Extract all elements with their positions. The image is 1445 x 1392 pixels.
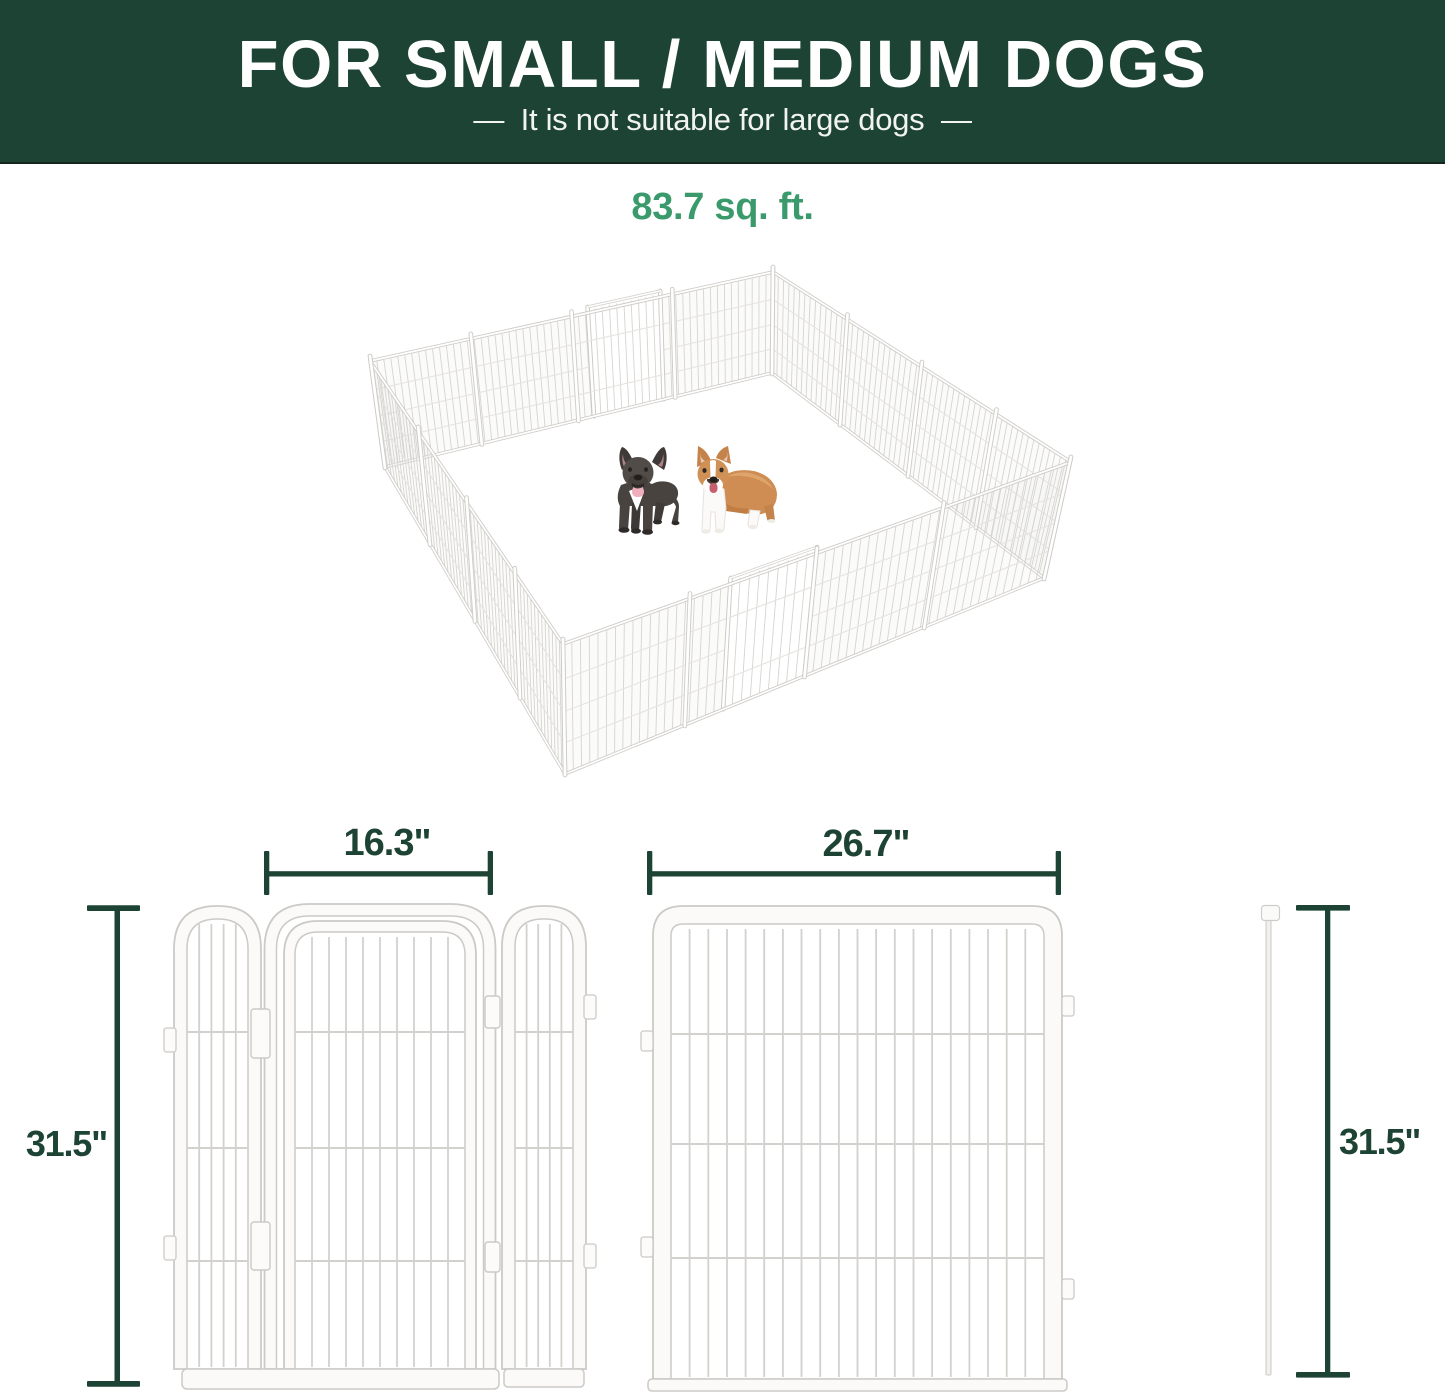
svg-text:31.5": 31.5" — [26, 1123, 107, 1164]
svg-text:26.7": 26.7" — [823, 823, 910, 865]
svg-text:16.3": 16.3" — [344, 822, 431, 864]
svg-text:31.5": 31.5" — [1339, 1121, 1420, 1162]
